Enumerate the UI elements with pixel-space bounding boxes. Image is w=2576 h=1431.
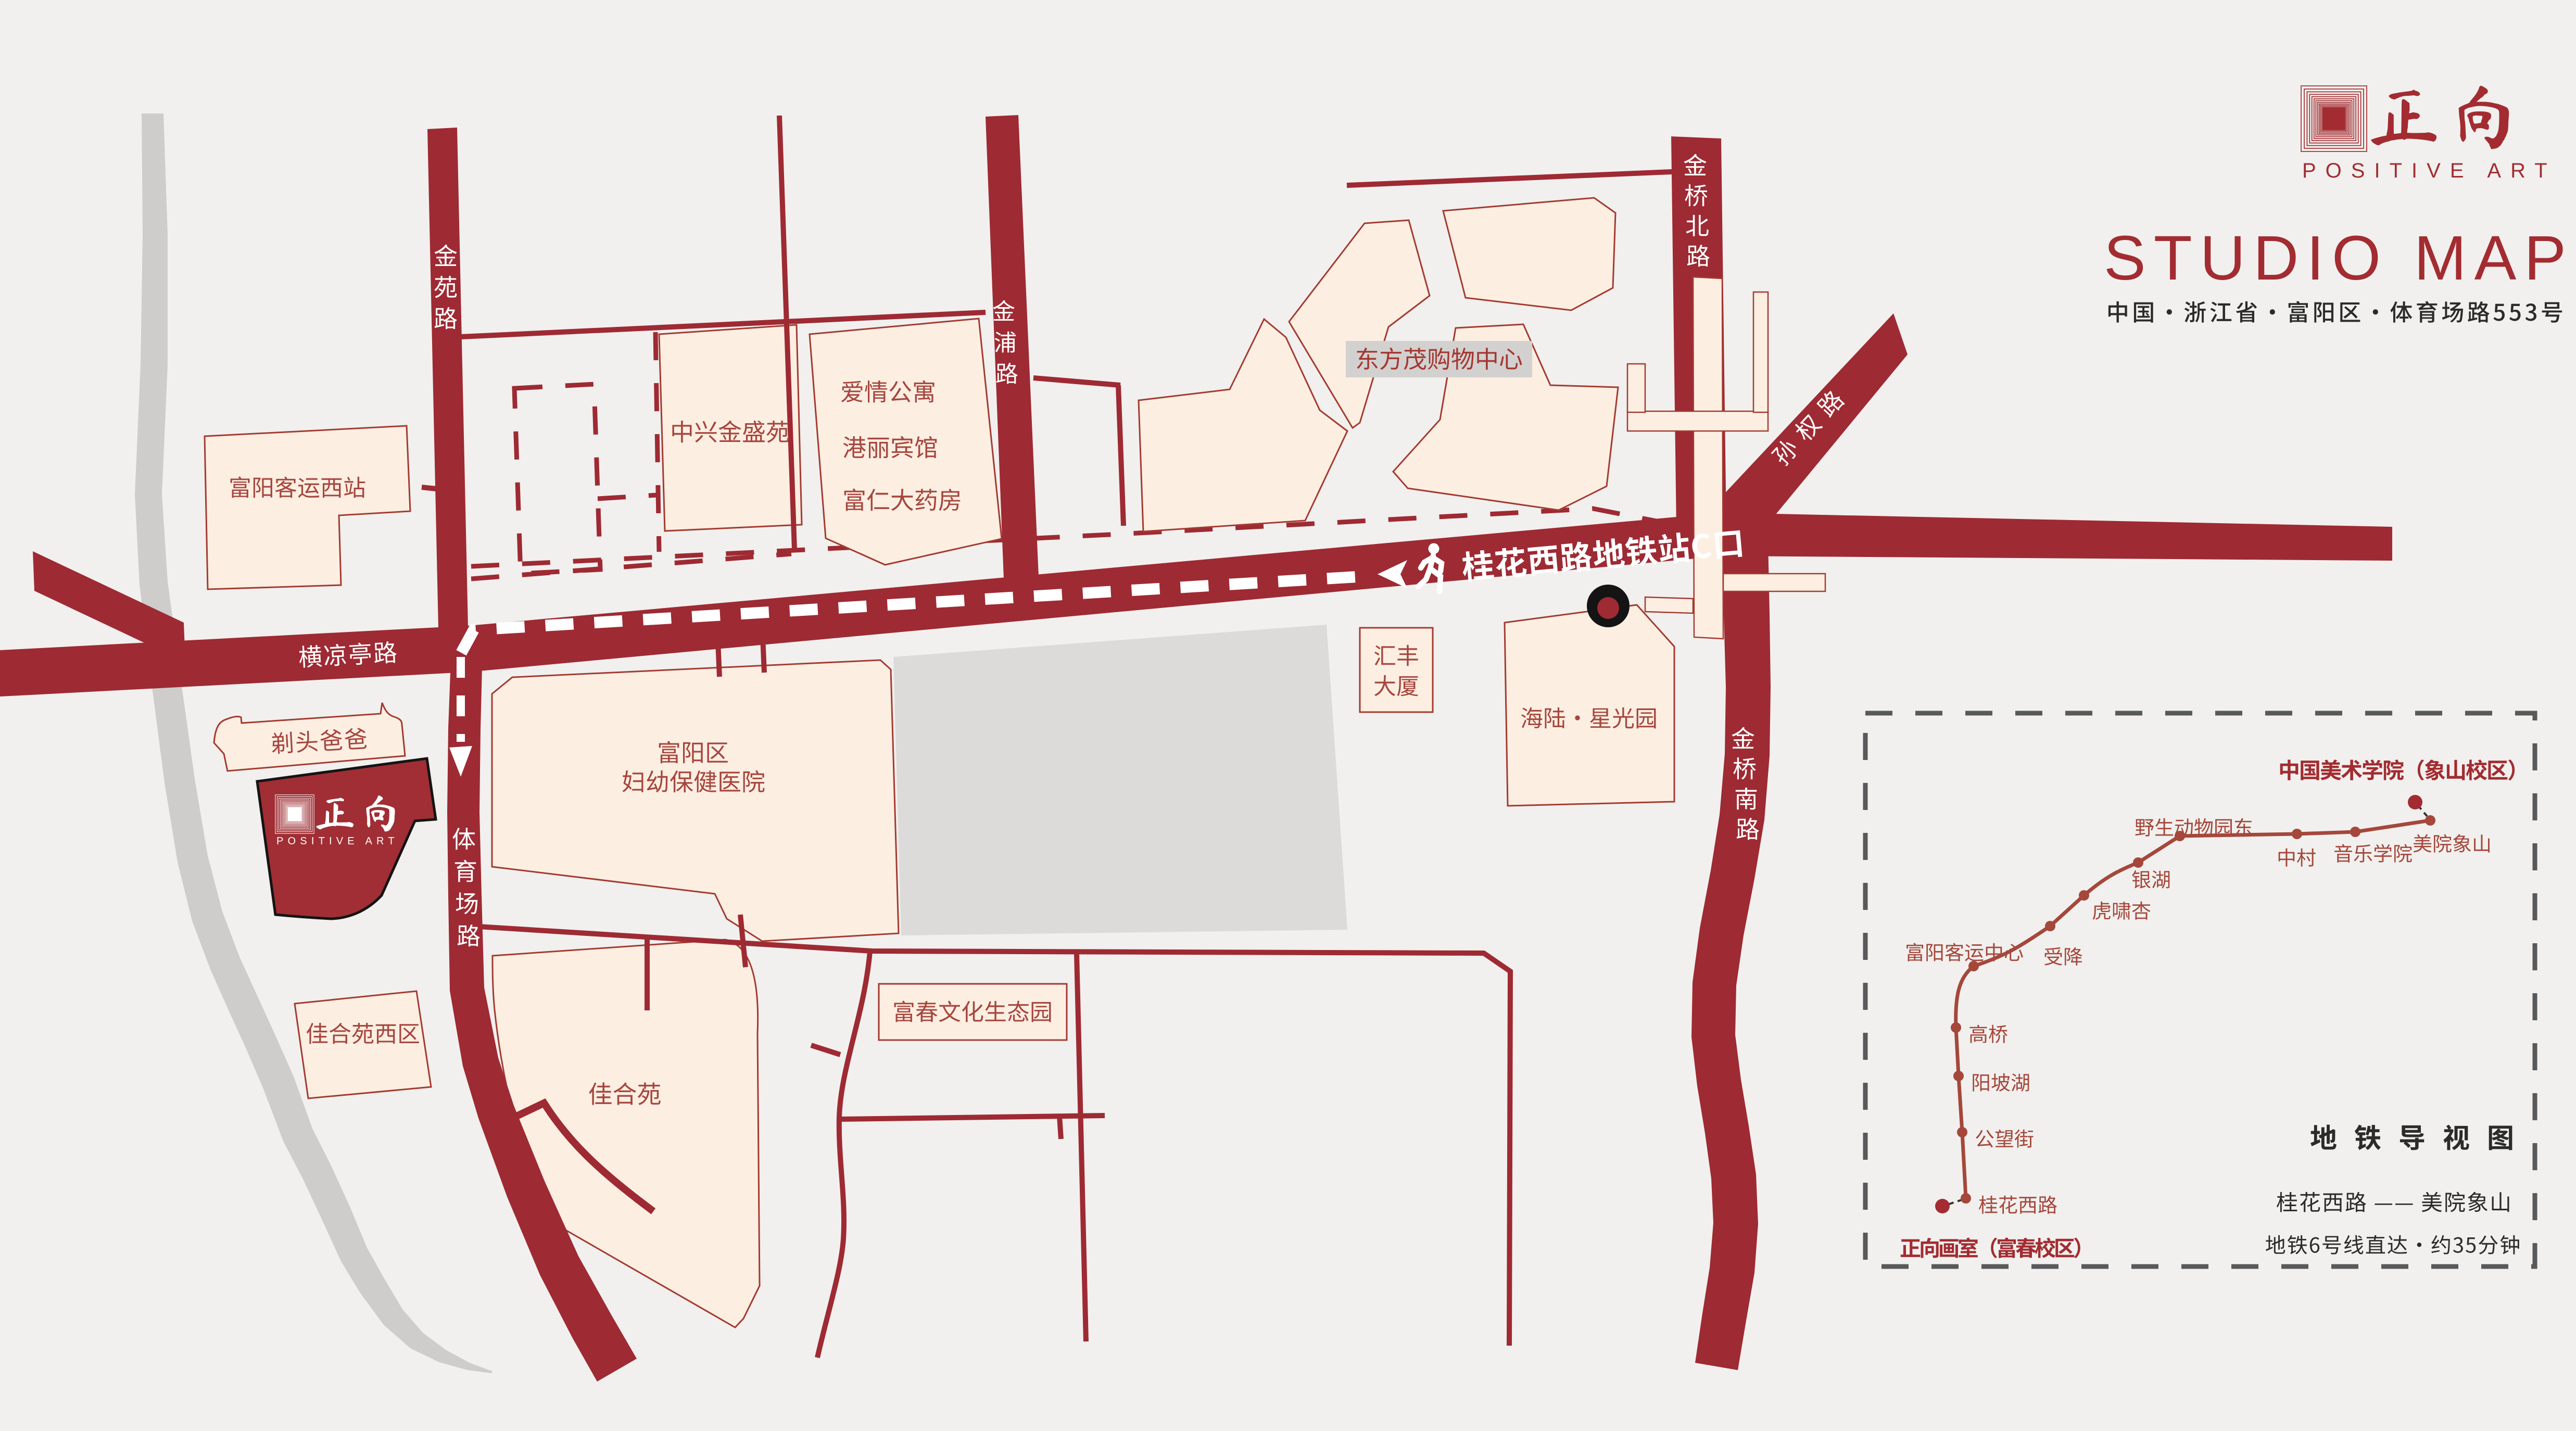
svg-text:POSITIVE ART: POSITIVE ART bbox=[2302, 159, 2557, 182]
svg-text:POSITIVE ART: POSITIVE ART bbox=[276, 835, 399, 847]
svg-text:STUDIO MAP: STUDIO MAP bbox=[2104, 222, 2574, 293]
